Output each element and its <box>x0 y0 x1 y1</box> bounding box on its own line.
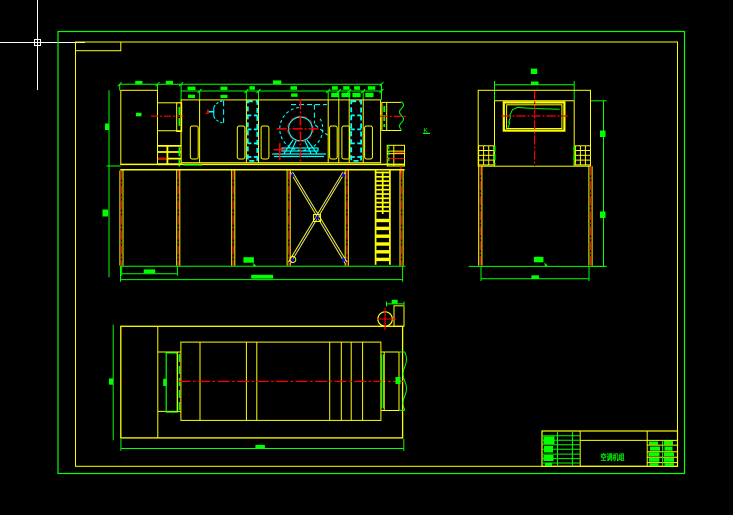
svg-text:空调机组: 空调机组 <box>601 452 625 462</box>
